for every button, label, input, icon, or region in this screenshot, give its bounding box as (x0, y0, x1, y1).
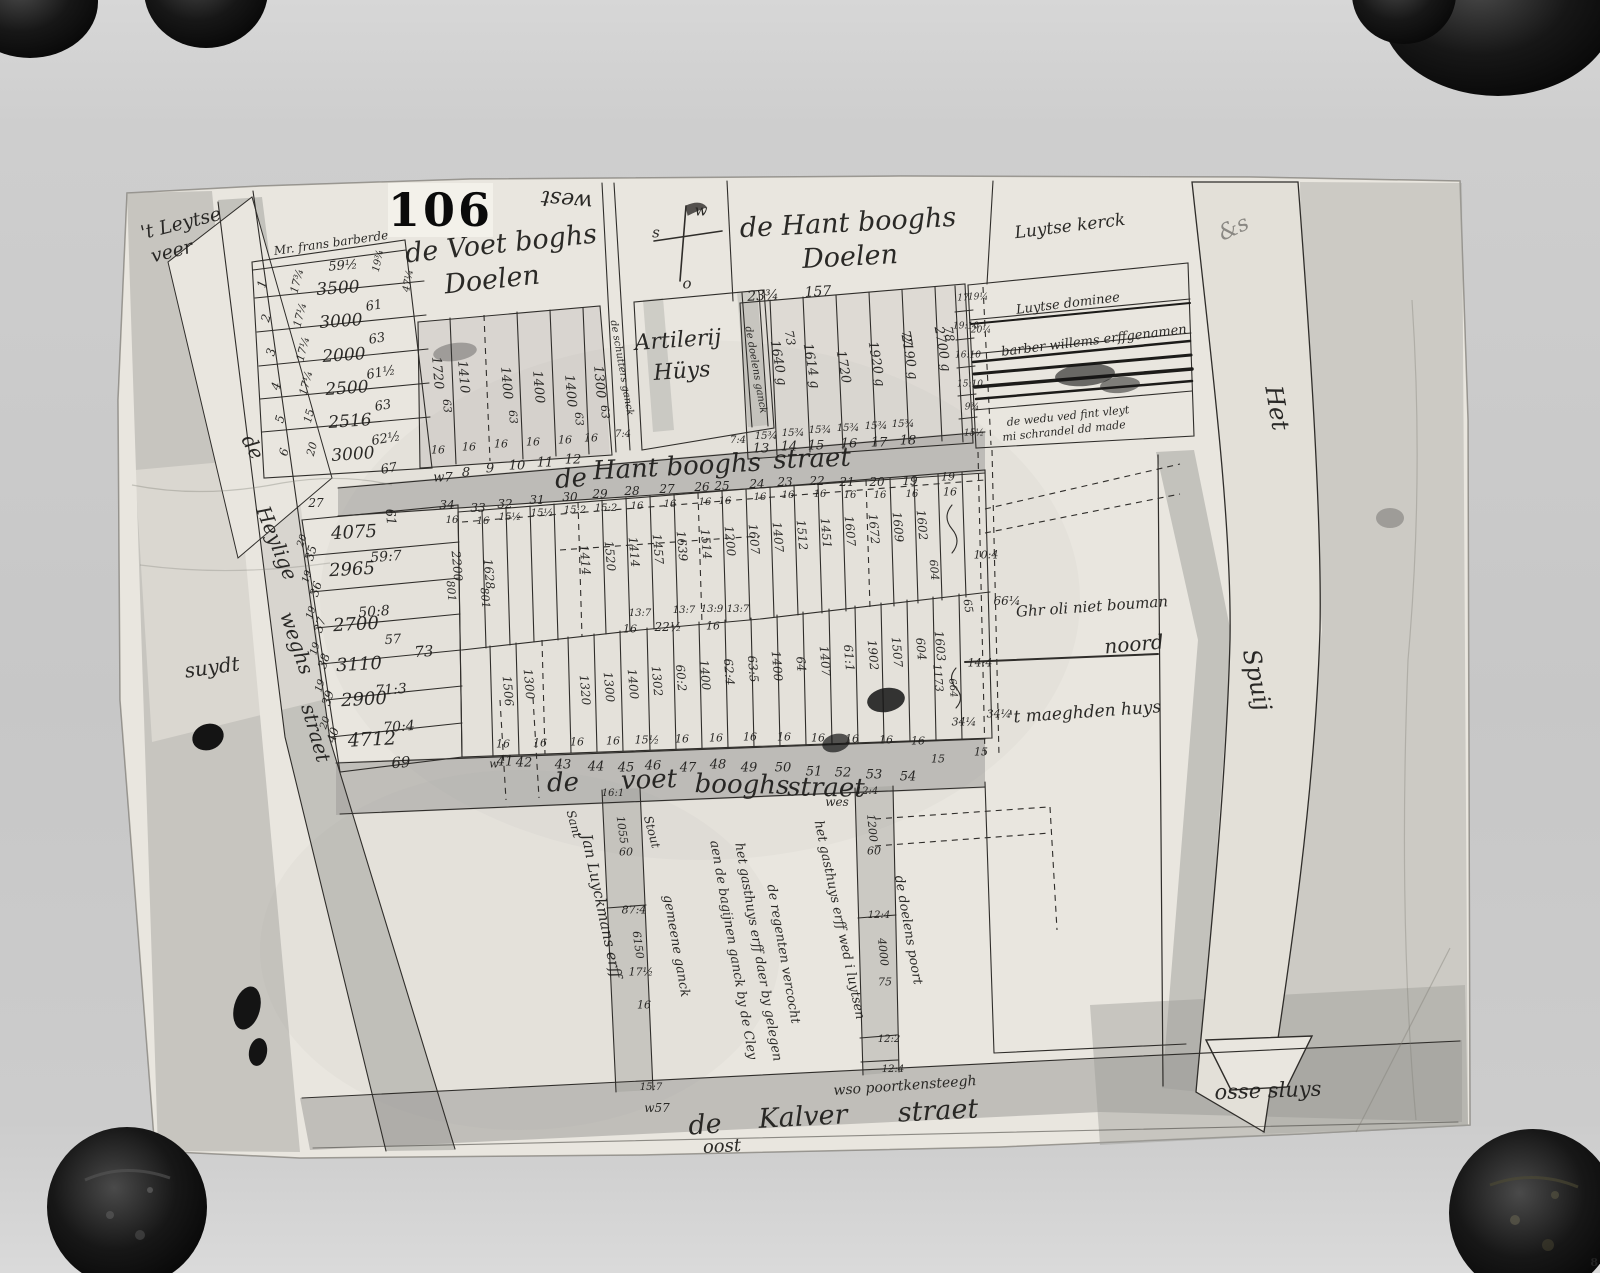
map-label: 57 (384, 633, 401, 647)
map-label: 16 (570, 737, 584, 748)
map-label: 1720 (834, 350, 853, 385)
map-label: 16 (606, 736, 620, 747)
map-label: 1720 (429, 356, 445, 390)
map-label: 1603 (933, 630, 948, 661)
map-label: 63 (573, 412, 585, 427)
map-label: 4712 (347, 729, 396, 751)
map-label: 15¾ (809, 426, 831, 436)
map-label: 20 (305, 441, 319, 457)
map-label: 15 (931, 754, 945, 765)
map-label: Luytse kerck (1014, 212, 1126, 242)
map-label: 2000 (322, 346, 366, 366)
map-label: 15½ (964, 430, 984, 439)
street-handboogstraat: de (554, 465, 588, 493)
map-label: 1200 (723, 525, 738, 556)
map-label: 16 (874, 491, 887, 501)
map-label: 15¾ (782, 429, 804, 439)
map-label: 16 (675, 734, 689, 745)
map-label: 9 (486, 463, 494, 476)
map-label: Spuij (1239, 647, 1275, 713)
map-label: 16 (906, 490, 919, 500)
map-label: Mr. frans barberde (273, 229, 389, 257)
map-label: 66¼ (994, 595, 1021, 607)
map-label: 61 (383, 508, 397, 526)
map-labels-layer: de Voet boghsDoelende Hant booghsDoelenA… (0, 0, 1600, 1273)
map-label: 52 (835, 767, 852, 780)
map-label: 73 (783, 329, 797, 346)
map-label: 1400 (562, 374, 578, 408)
map-label: 16 (943, 487, 957, 498)
map-label: 16 (709, 733, 723, 744)
map-label: 1514 (699, 528, 714, 559)
map-label: 12:2 (878, 1035, 900, 1045)
map-label: w7 (433, 472, 452, 485)
map-label: 1400 (498, 366, 514, 400)
map-label: 3500 (316, 279, 360, 299)
map-label: 87:4 (622, 905, 647, 916)
title-handboogs-doelen: de Hant booghs (739, 204, 957, 242)
label-het-spui: Het (1261, 384, 1292, 432)
map-label: 15:2 (595, 504, 617, 514)
map-label: 16 (719, 497, 732, 507)
map-label: 25 (714, 480, 729, 492)
map-label: 4075 (331, 523, 378, 543)
map-label: 32 (497, 498, 512, 510)
map-label: 69 (391, 755, 411, 771)
map-label: 1055 (615, 815, 630, 844)
map-label: 19¼ (968, 294, 988, 303)
map-label: 44 (588, 761, 605, 774)
map-label: 16 (699, 498, 712, 508)
map-label: 157 (804, 284, 831, 299)
sheet-number-stamp: 106 (388, 183, 493, 237)
map-label: 13:7 (727, 605, 749, 615)
map-label: 1400 (530, 370, 546, 404)
map-label: 15¾ (755, 432, 777, 442)
map-label: 30 (562, 491, 577, 503)
map-label: 1628 (482, 558, 497, 589)
map-label: 16 (814, 490, 827, 500)
map-label: het gasthuys erff wed i luytsen (812, 819, 867, 1020)
map-label: 10 (509, 460, 526, 473)
map-label: 1200 (865, 814, 879, 843)
map-label: 23¾ (747, 288, 779, 304)
map-label: 10:4 (974, 550, 999, 561)
map-label: 16 (431, 445, 445, 456)
map-label: 42 (516, 757, 533, 770)
map-label: 20 (869, 476, 884, 488)
map-label: 13 (753, 443, 770, 456)
map-label: 16 (631, 502, 644, 512)
map-label: w57 (644, 1102, 670, 1114)
map-label: 15¾ (892, 420, 914, 430)
street-voetboogstraat: de (547, 769, 580, 796)
map-label: 16 (637, 1000, 651, 1011)
map-label: de schutters ganck (608, 320, 635, 417)
map-label: 16 (558, 435, 572, 446)
map-label: Doelen (801, 241, 898, 273)
map-label: 13:7 (673, 606, 695, 616)
map-label: 16 (845, 734, 859, 745)
map-label: 1506 (501, 675, 516, 706)
map-label: de doelens poort (892, 874, 924, 985)
map-label: 61:1 (842, 644, 856, 672)
map-label: 't maeghden huys (1008, 699, 1161, 727)
map-label: 17½ (629, 967, 654, 978)
map-label: 31 (529, 494, 544, 506)
map-label: 15½ (635, 735, 660, 746)
map-label: 604 (914, 637, 928, 661)
map-label: 59½ (328, 258, 358, 273)
map-label: 1902 (866, 639, 881, 670)
map-label: Luytse dominee (1015, 291, 1120, 317)
map-label: 1400 (626, 668, 641, 699)
map-label: 15:10 (957, 381, 983, 390)
map-label: 33 (470, 502, 485, 514)
map-label: 77 (900, 329, 914, 346)
map-label: 4000 (876, 938, 890, 967)
street-heiligeweg: de (238, 431, 267, 462)
map-label: Heylige (253, 503, 301, 583)
map-label: 3000 (319, 312, 363, 332)
title-artillery-house: Artilerij (634, 327, 722, 355)
map-label: 29 (592, 488, 607, 500)
map-label: 1639 (675, 530, 690, 561)
map-label: veer (149, 238, 195, 267)
map-label: 53 (866, 769, 883, 782)
map-label: 62:4 (722, 658, 736, 686)
map-label: 67 (380, 461, 399, 477)
map-label: 15 (974, 747, 988, 758)
map-label: 34¼ (987, 709, 1012, 720)
map-label: 47 (680, 762, 697, 775)
map-label: 18 (900, 435, 917, 448)
map-label: 1414 (627, 536, 642, 567)
map-label: 12:4 (856, 787, 878, 797)
map-label: 1400 (698, 659, 713, 690)
map-label: 2500 (325, 379, 369, 399)
map-label: 15¾ (865, 422, 887, 432)
map-label: 20¼ (971, 327, 991, 336)
map-label: 17¼ (294, 336, 311, 363)
map-label: 2965 (329, 560, 376, 580)
map-label: 13:9 (701, 605, 723, 615)
sheet-number: 106 (388, 183, 493, 237)
map-label: 60:2 (674, 664, 688, 692)
map-label: &s (1215, 213, 1252, 246)
map-label: 16 (782, 491, 795, 501)
map-label: Kalver (758, 1101, 848, 1133)
map-label: 801 (479, 587, 492, 609)
map-label: 604 (928, 559, 941, 581)
map-label: 26 (694, 481, 709, 493)
map-label: 22 (809, 475, 824, 487)
map-label: 16 (664, 500, 677, 510)
map-label: 13:7 (629, 609, 651, 619)
map-label: 11 (537, 457, 554, 470)
map-label: 2200 (450, 550, 465, 581)
map-label: 19¾ (372, 249, 386, 273)
compass-s: s (652, 226, 660, 241)
map-label: 27 (308, 497, 323, 509)
map-label: 1607 (747, 523, 762, 554)
compass-o: o (682, 277, 691, 292)
map-label: 15:2 (564, 506, 586, 516)
map-label: 63 (599, 405, 611, 420)
map-label: 8 (462, 467, 470, 480)
map-label: 41 (497, 756, 514, 769)
map-label: 63 (368, 331, 387, 347)
map-label: 12:4 (868, 911, 890, 921)
map-label: 1920 g (866, 340, 887, 387)
map-label: 16 (462, 442, 476, 453)
map-label: 4 (269, 381, 283, 391)
map-label: 63 (374, 398, 393, 414)
map-label: Hant booghs (592, 450, 761, 485)
map-label: 28 (624, 485, 639, 497)
map-label: 1614 g (801, 342, 822, 389)
map-label: 1320 (578, 674, 593, 705)
map-label: gemeene ganck (661, 894, 692, 998)
map-label: Hüys (653, 359, 711, 385)
map-label: 17 (871, 437, 888, 450)
map-label: noord (1104, 631, 1165, 656)
map-label: 17¼ (291, 302, 308, 329)
map-label: 60 (867, 846, 881, 857)
map-label: 15 (808, 440, 825, 453)
map-label: 14:4 (968, 658, 993, 669)
map-label: 2 (259, 313, 273, 323)
map-label: 61½ (366, 364, 397, 382)
map-label: 16 (533, 738, 547, 749)
map-label: 43 (555, 759, 572, 772)
map-label: west (540, 186, 594, 212)
map-label: 16 (494, 439, 508, 450)
map-label: 1 (255, 279, 269, 289)
map-label: 6150 (631, 930, 646, 959)
map-label: 1302 (650, 665, 665, 696)
map-label: 1173 (931, 664, 944, 693)
map-label: 2700 (333, 615, 380, 635)
map-label: Ghr oli niet bouman (1016, 594, 1169, 620)
map-label: 16 (754, 493, 767, 503)
map-label: Jan Luyckmans erff (578, 833, 623, 980)
map-label: 49 (741, 762, 758, 775)
map-label: 1602 (915, 509, 930, 540)
map-label: 1407 (771, 521, 786, 552)
map-label: 27 (659, 483, 674, 495)
map-label: 1300 (522, 668, 537, 699)
map-label: 1607 (843, 515, 858, 546)
map-label: 64 (794, 656, 807, 672)
map-label: 1609 (891, 511, 906, 542)
map-label: barber willems erffgenamen (1001, 323, 1188, 359)
map-label: 16 (777, 732, 791, 743)
map-label: 15 (302, 408, 316, 424)
map-label: 45 (618, 762, 635, 775)
map-label: 34 (439, 499, 454, 511)
map-label: 47¼ (402, 269, 416, 293)
map-label: 1507 (890, 636, 905, 667)
map-label: 16 (911, 736, 925, 747)
map-label: wes (825, 796, 849, 808)
map-label: 51 (806, 766, 823, 779)
map-label: 17¾ (288, 268, 305, 295)
map-label: 664 (946, 678, 958, 698)
map-label: 1300 (602, 671, 617, 702)
frame-number: 8 (1590, 1256, 1598, 1269)
map-label: 17¼ (297, 370, 314, 397)
map-label: 16 (477, 517, 490, 527)
map-label: 3110 (336, 655, 383, 675)
map-label: 16:10 (955, 352, 981, 361)
map-label: 9¾ (965, 404, 979, 413)
map-label: 1451 (819, 517, 834, 548)
map-label: 50 (775, 762, 792, 775)
map-label: 63 (507, 410, 519, 425)
map-label: 1414 (578, 544, 593, 575)
map-label: 16:1 (602, 789, 624, 799)
map-label: 15:7 (640, 1083, 662, 1093)
map-label: 1520 (603, 540, 618, 571)
map-label: 16 (706, 621, 720, 632)
map-label: Doelen (443, 262, 541, 299)
map-label: 1407 (818, 645, 833, 676)
map-label: 19 (941, 472, 955, 483)
map-label: 16 (844, 491, 857, 501)
map-label: 24 (749, 478, 764, 490)
map-label: 6 (277, 447, 291, 457)
map-label: 34¼ (952, 717, 977, 728)
map-label: 16 (446, 516, 459, 526)
map-label: 62½ (371, 430, 402, 448)
map-label: 12 (565, 454, 582, 467)
map-label: 15¾ (837, 424, 859, 434)
map-label: 5 (273, 414, 287, 424)
map-label: Stout (642, 815, 662, 850)
label-osse-sluys: osse sluys (1214, 1079, 1322, 1104)
map-label: 1400 (770, 650, 785, 681)
map-label: suydt (183, 653, 241, 681)
map-label: straet (897, 1095, 979, 1126)
map-label: 16 (526, 437, 540, 448)
map-label: 3000 (331, 445, 375, 465)
map-label: 1457 (651, 533, 666, 564)
map-label: 22½ (655, 621, 682, 633)
map-label: 19 (902, 475, 917, 487)
map-label: 16 (584, 433, 598, 444)
map-label: 16 (879, 735, 893, 746)
map-label: 7:4 (730, 436, 746, 446)
map-label: oost (702, 1137, 741, 1157)
map-label: 63 (441, 399, 453, 414)
map-label: 14 (781, 441, 798, 454)
map-label: 48 (710, 759, 727, 772)
map-label: 60 (619, 847, 633, 858)
map-label: 23 (777, 476, 792, 488)
map-label: 1672 (867, 513, 882, 544)
map-label: 15½ (531, 509, 553, 519)
map-label: 73 (414, 644, 434, 660)
map-label: 2900 (341, 690, 388, 710)
map-label: 46 (645, 760, 662, 773)
map-label: 12:4 (882, 1065, 904, 1075)
map-label: 801 (445, 580, 458, 602)
map-label: 16 (743, 732, 757, 743)
map-label: 21 (839, 476, 854, 488)
compass-w: w (695, 204, 708, 219)
map-label: 16 (811, 733, 825, 744)
map-label: 61 (365, 298, 384, 314)
map-label: 75 (878, 977, 892, 988)
map-label: 3 (264, 347, 278, 357)
map-label: 1300 (591, 365, 607, 399)
archival-map-photo: de Voet boghsDoelende Hant booghsDoelenA… (0, 0, 1600, 1273)
map-label: 1512 (795, 519, 810, 550)
map-label: 7:4 (615, 430, 631, 440)
map-label: 2516 (328, 412, 372, 432)
map-label: 65 (961, 598, 974, 614)
map-label: 16 (623, 624, 637, 635)
map-label: 16 (496, 739, 510, 750)
map-label: 63:5 (746, 655, 760, 683)
map-label: 15½ (499, 513, 521, 523)
map-label: de doelens ganck (742, 326, 767, 415)
map-label: 16 (841, 438, 858, 451)
map-label: 54 (900, 771, 917, 784)
map-label: 1410 (455, 360, 471, 394)
